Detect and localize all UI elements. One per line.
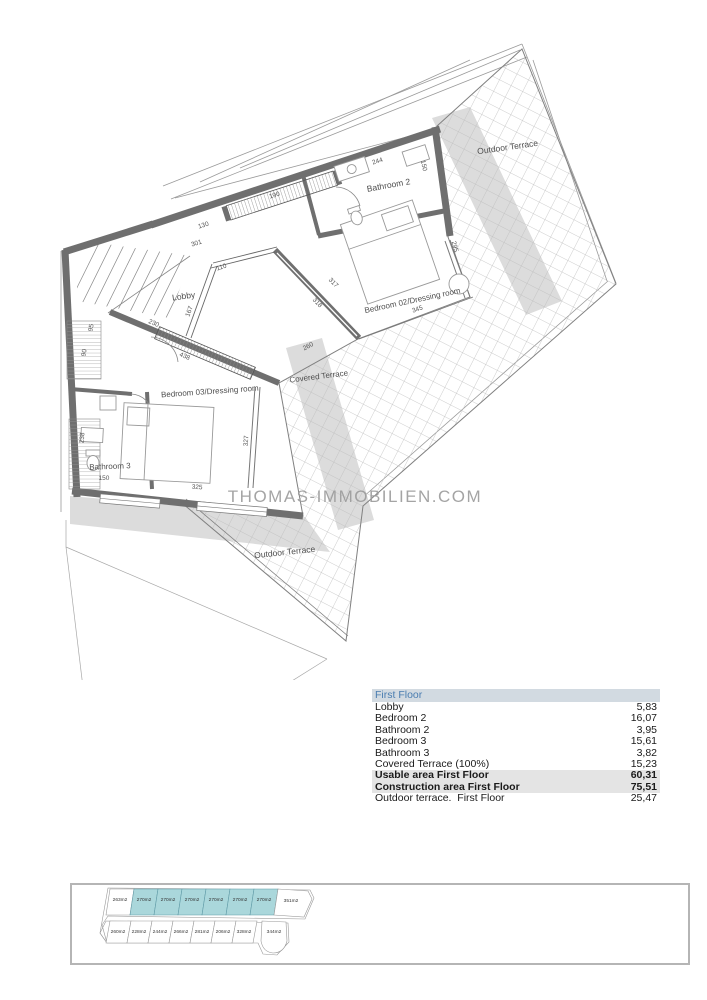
dim-label: 317 xyxy=(327,277,340,290)
plot-label: 270m2 xyxy=(209,897,224,903)
plot-label: 270m2 xyxy=(137,897,152,903)
page: 244 150 190 130 301 110 167 230 438 95 9… xyxy=(0,0,707,1000)
site-plots-top xyxy=(106,889,312,917)
room-label-bathroom-2: Bathroom 2 xyxy=(366,176,411,194)
plot-label: 270m2 xyxy=(185,897,200,903)
dim-label: 345 xyxy=(411,304,424,314)
row-value: 25,47 xyxy=(631,793,657,804)
dim-label: 327 xyxy=(243,435,251,447)
plot-label: 351m2 xyxy=(284,898,299,904)
dim-label: 325 xyxy=(191,484,203,492)
lobby-partitions xyxy=(186,247,277,338)
bed-3 xyxy=(120,403,214,484)
site-plan: 263m2 270m2 270m2 270m2 270m2 270m2 270m… xyxy=(72,885,684,959)
plot-label: 270m2 xyxy=(257,897,272,903)
window-band-lobby xyxy=(155,327,256,380)
table-row: Outdoor terrace. First Floor25,47 xyxy=(372,793,660,804)
dim-label: 244 xyxy=(371,156,384,166)
room-label-bathroom-3: Bathroom 3 xyxy=(89,461,131,471)
watermark-text: THOMAS-IMMOBILIEN.COM xyxy=(228,487,482,506)
plot-label: 263m2 xyxy=(113,897,128,903)
table-row: Bedroom 315,61 xyxy=(372,736,660,747)
site-labels-bottom: 260m2 228m2 244m2 266m2 281m2 206m2 328m… xyxy=(111,929,282,935)
area-table: First Floor Lobby5,83 Bedroom 216,07 Bat… xyxy=(372,689,660,805)
dim-label: 150 xyxy=(419,160,428,172)
plot-label: 344m2 xyxy=(267,929,282,935)
plot-label: 281m2 xyxy=(195,929,210,935)
row-label: Outdoor terrace. First Floor xyxy=(375,793,505,804)
dim-label: 130 xyxy=(197,220,210,230)
room-label-bedroom-03: Bedroom 03/Dressing room xyxy=(161,384,260,400)
glass-wall-line xyxy=(277,253,357,336)
plot-label: 244m2 xyxy=(153,929,168,935)
dim-label: 238 xyxy=(79,432,87,444)
row-value: 15,61 xyxy=(631,736,657,747)
site-plots-bottom xyxy=(106,921,287,953)
plot-label: 270m2 xyxy=(233,897,248,903)
dim-label: 301 xyxy=(190,238,203,248)
plot-label: 270m2 xyxy=(161,897,176,903)
area-table-header: First Floor xyxy=(372,689,660,702)
plot-label: 260m2 xyxy=(111,929,126,935)
dim-label: 295 xyxy=(450,240,460,253)
nightstand-icon xyxy=(100,396,116,410)
dim-label: 150 xyxy=(99,475,110,482)
plot-label: 266m2 xyxy=(174,929,189,935)
row-label: Bedroom 3 xyxy=(375,736,426,747)
plot-label: 328m2 xyxy=(237,929,252,935)
floor-plan: 244 150 190 130 301 110 167 230 438 95 9… xyxy=(0,0,707,680)
plot-label: 206m2 xyxy=(216,929,231,935)
room-label-lobby: Lobby xyxy=(171,289,196,302)
plot-label: 228m2 xyxy=(132,929,147,935)
site-plan-box: 263m2 270m2 270m2 270m2 270m2 270m2 270m… xyxy=(70,883,690,965)
terrace-crosshatch xyxy=(182,49,616,641)
